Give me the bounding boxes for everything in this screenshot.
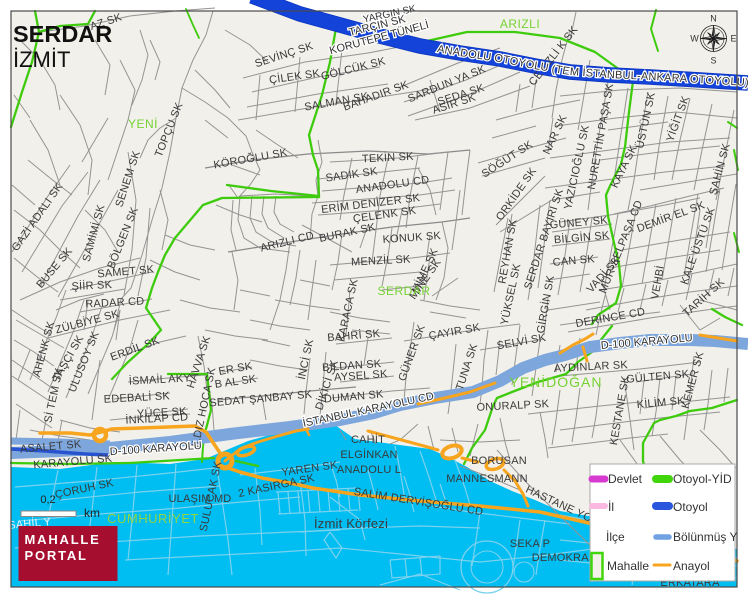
svg-text:ULAŞIM MD: ULAŞIM MD — [169, 493, 232, 505]
svg-text:CAHİT: CAHİT — [351, 433, 385, 446]
svg-text:km: km — [84, 506, 100, 520]
svg-text:Otoyol-YİD: Otoyol-YİD — [673, 472, 732, 486]
svg-text:ŞİİR SK: ŞİİR SK — [71, 278, 113, 293]
svg-text:S: S — [710, 56, 716, 66]
svg-text:İlçe: İlçe — [606, 530, 625, 544]
svg-text:Devlet: Devlet — [608, 472, 643, 486]
svg-text:MAHALLE: MAHALLE — [25, 532, 101, 547]
svg-text:E: E — [730, 34, 736, 44]
svg-text:CUMHURİYET: CUMHURİYET — [107, 511, 199, 526]
svg-text:SERDAR: SERDAR — [13, 21, 112, 47]
svg-text:YENİ: YENİ — [128, 117, 158, 131]
svg-text:ELGİNKAN: ELGİNKAN — [340, 448, 397, 461]
svg-text:BORUSAN: BORUSAN — [471, 455, 527, 467]
svg-text:ARIZLI: ARIZLI — [500, 17, 540, 31]
svg-text:MANNESMANN: MANNESMANN — [446, 473, 527, 485]
svg-text:TEKİN SK: TEKİN SK — [362, 150, 415, 166]
svg-text:N: N — [710, 14, 717, 24]
svg-text:SERDAR: SERDAR — [377, 284, 430, 298]
svg-text:İZMİT: İZMİT — [13, 47, 70, 72]
svg-text:İl: İl — [608, 500, 614, 514]
svg-text:Otoyol: Otoyol — [673, 500, 708, 514]
svg-text:0,2: 0,2 — [40, 494, 55, 506]
svg-text:YENİDOĞAN: YENİDOĞAN — [509, 373, 602, 390]
svg-text:İzmit Körfezi: İzmit Körfezi — [314, 516, 388, 531]
svg-text:PORTAL: PORTAL — [25, 548, 88, 563]
svg-text:DEMOKRAS: DEMOKRAS — [532, 552, 597, 564]
svg-text:Mahalle: Mahalle — [607, 559, 649, 573]
svg-text:W: W — [690, 34, 699, 44]
svg-text:Anayol: Anayol — [673, 559, 710, 573]
svg-text:ANADOLU L: ANADOLU L — [337, 464, 401, 476]
svg-text:SEKA P: SEKA P — [510, 538, 550, 550]
svg-text:Bölünmüş Y: Bölünmüş Y — [673, 530, 737, 544]
